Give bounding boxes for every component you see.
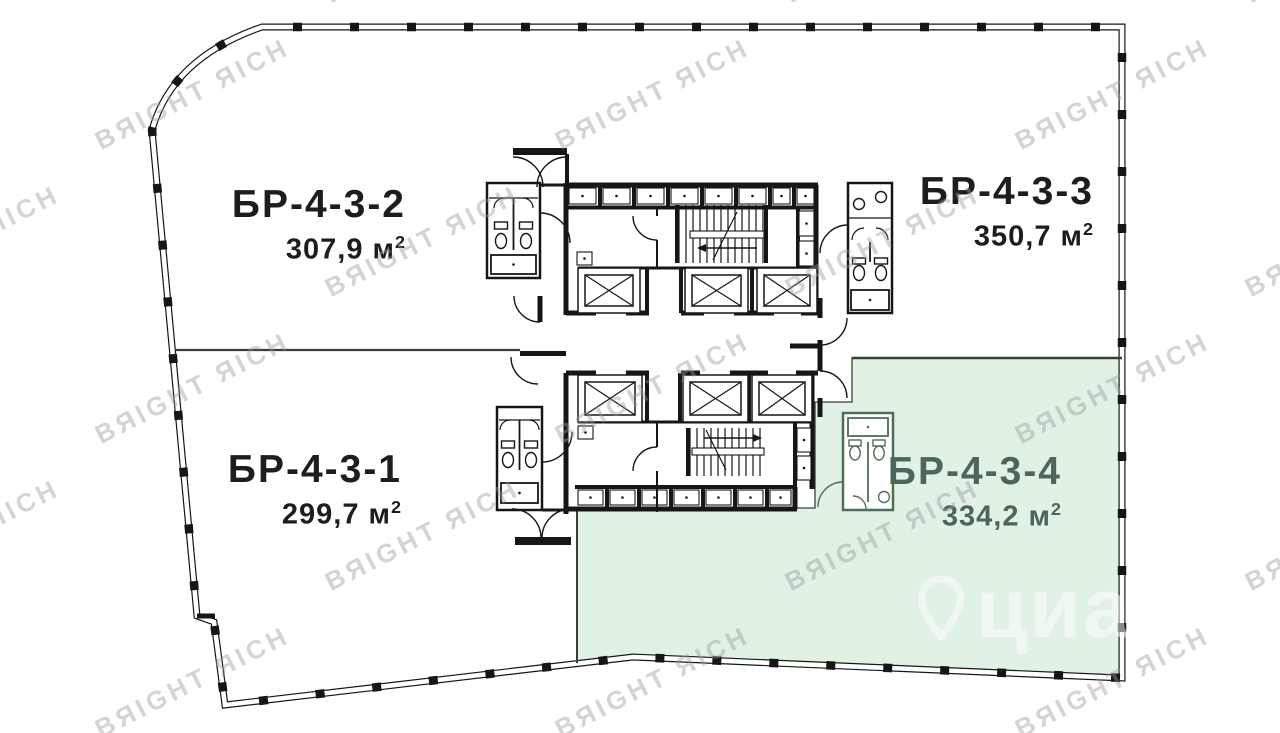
unit-area: 307,9 м2: [150, 233, 406, 265]
shaft-row-bottom: [578, 490, 791, 505]
elevator: [578, 268, 640, 313]
wall-stub-bottom: [515, 537, 571, 545]
floor-plan-canvas: БР-4-3-2 307,9 м2 БР-4-3-3 350,7 м2 БР-4…: [0, 0, 1280, 733]
unit-area: 350,7 м2: [840, 220, 1094, 252]
unit-area: 299,7 м2: [148, 498, 402, 530]
bathroom-top-left: [487, 183, 540, 278]
elevator: [685, 268, 748, 313]
shaft-row-top: [569, 188, 814, 204]
unit-label-br-4-3-1[interactable]: БР-4-3-1 299,7 м2: [148, 448, 402, 530]
wall-stub-top: [513, 148, 567, 155]
unit-area: 334,2 м2: [810, 500, 1062, 532]
unit-label-br-4-3-4-selected[interactable]: БР-4-3-4 334,2 м2: [810, 450, 1062, 532]
unit-id: БР-4-3-3: [840, 170, 1094, 215]
bathroom-bottom-left: [497, 407, 542, 510]
unit-label-br-4-3-2[interactable]: БР-4-3-2 307,9 м2: [150, 183, 406, 265]
elevator: [578, 375, 642, 422]
unit-label-br-4-3-3[interactable]: БР-4-3-3 350,7 м2: [840, 170, 1094, 252]
elevator: [683, 375, 748, 422]
elevator: [752, 375, 812, 422]
unit-id: БР-4-3-1: [148, 448, 402, 493]
unit-id: БР-4-3-4: [810, 450, 1062, 495]
floor-plan-drawing: [0, 0, 1280, 733]
elevator: [757, 268, 817, 313]
unit-id: БР-4-3-2: [150, 183, 406, 228]
